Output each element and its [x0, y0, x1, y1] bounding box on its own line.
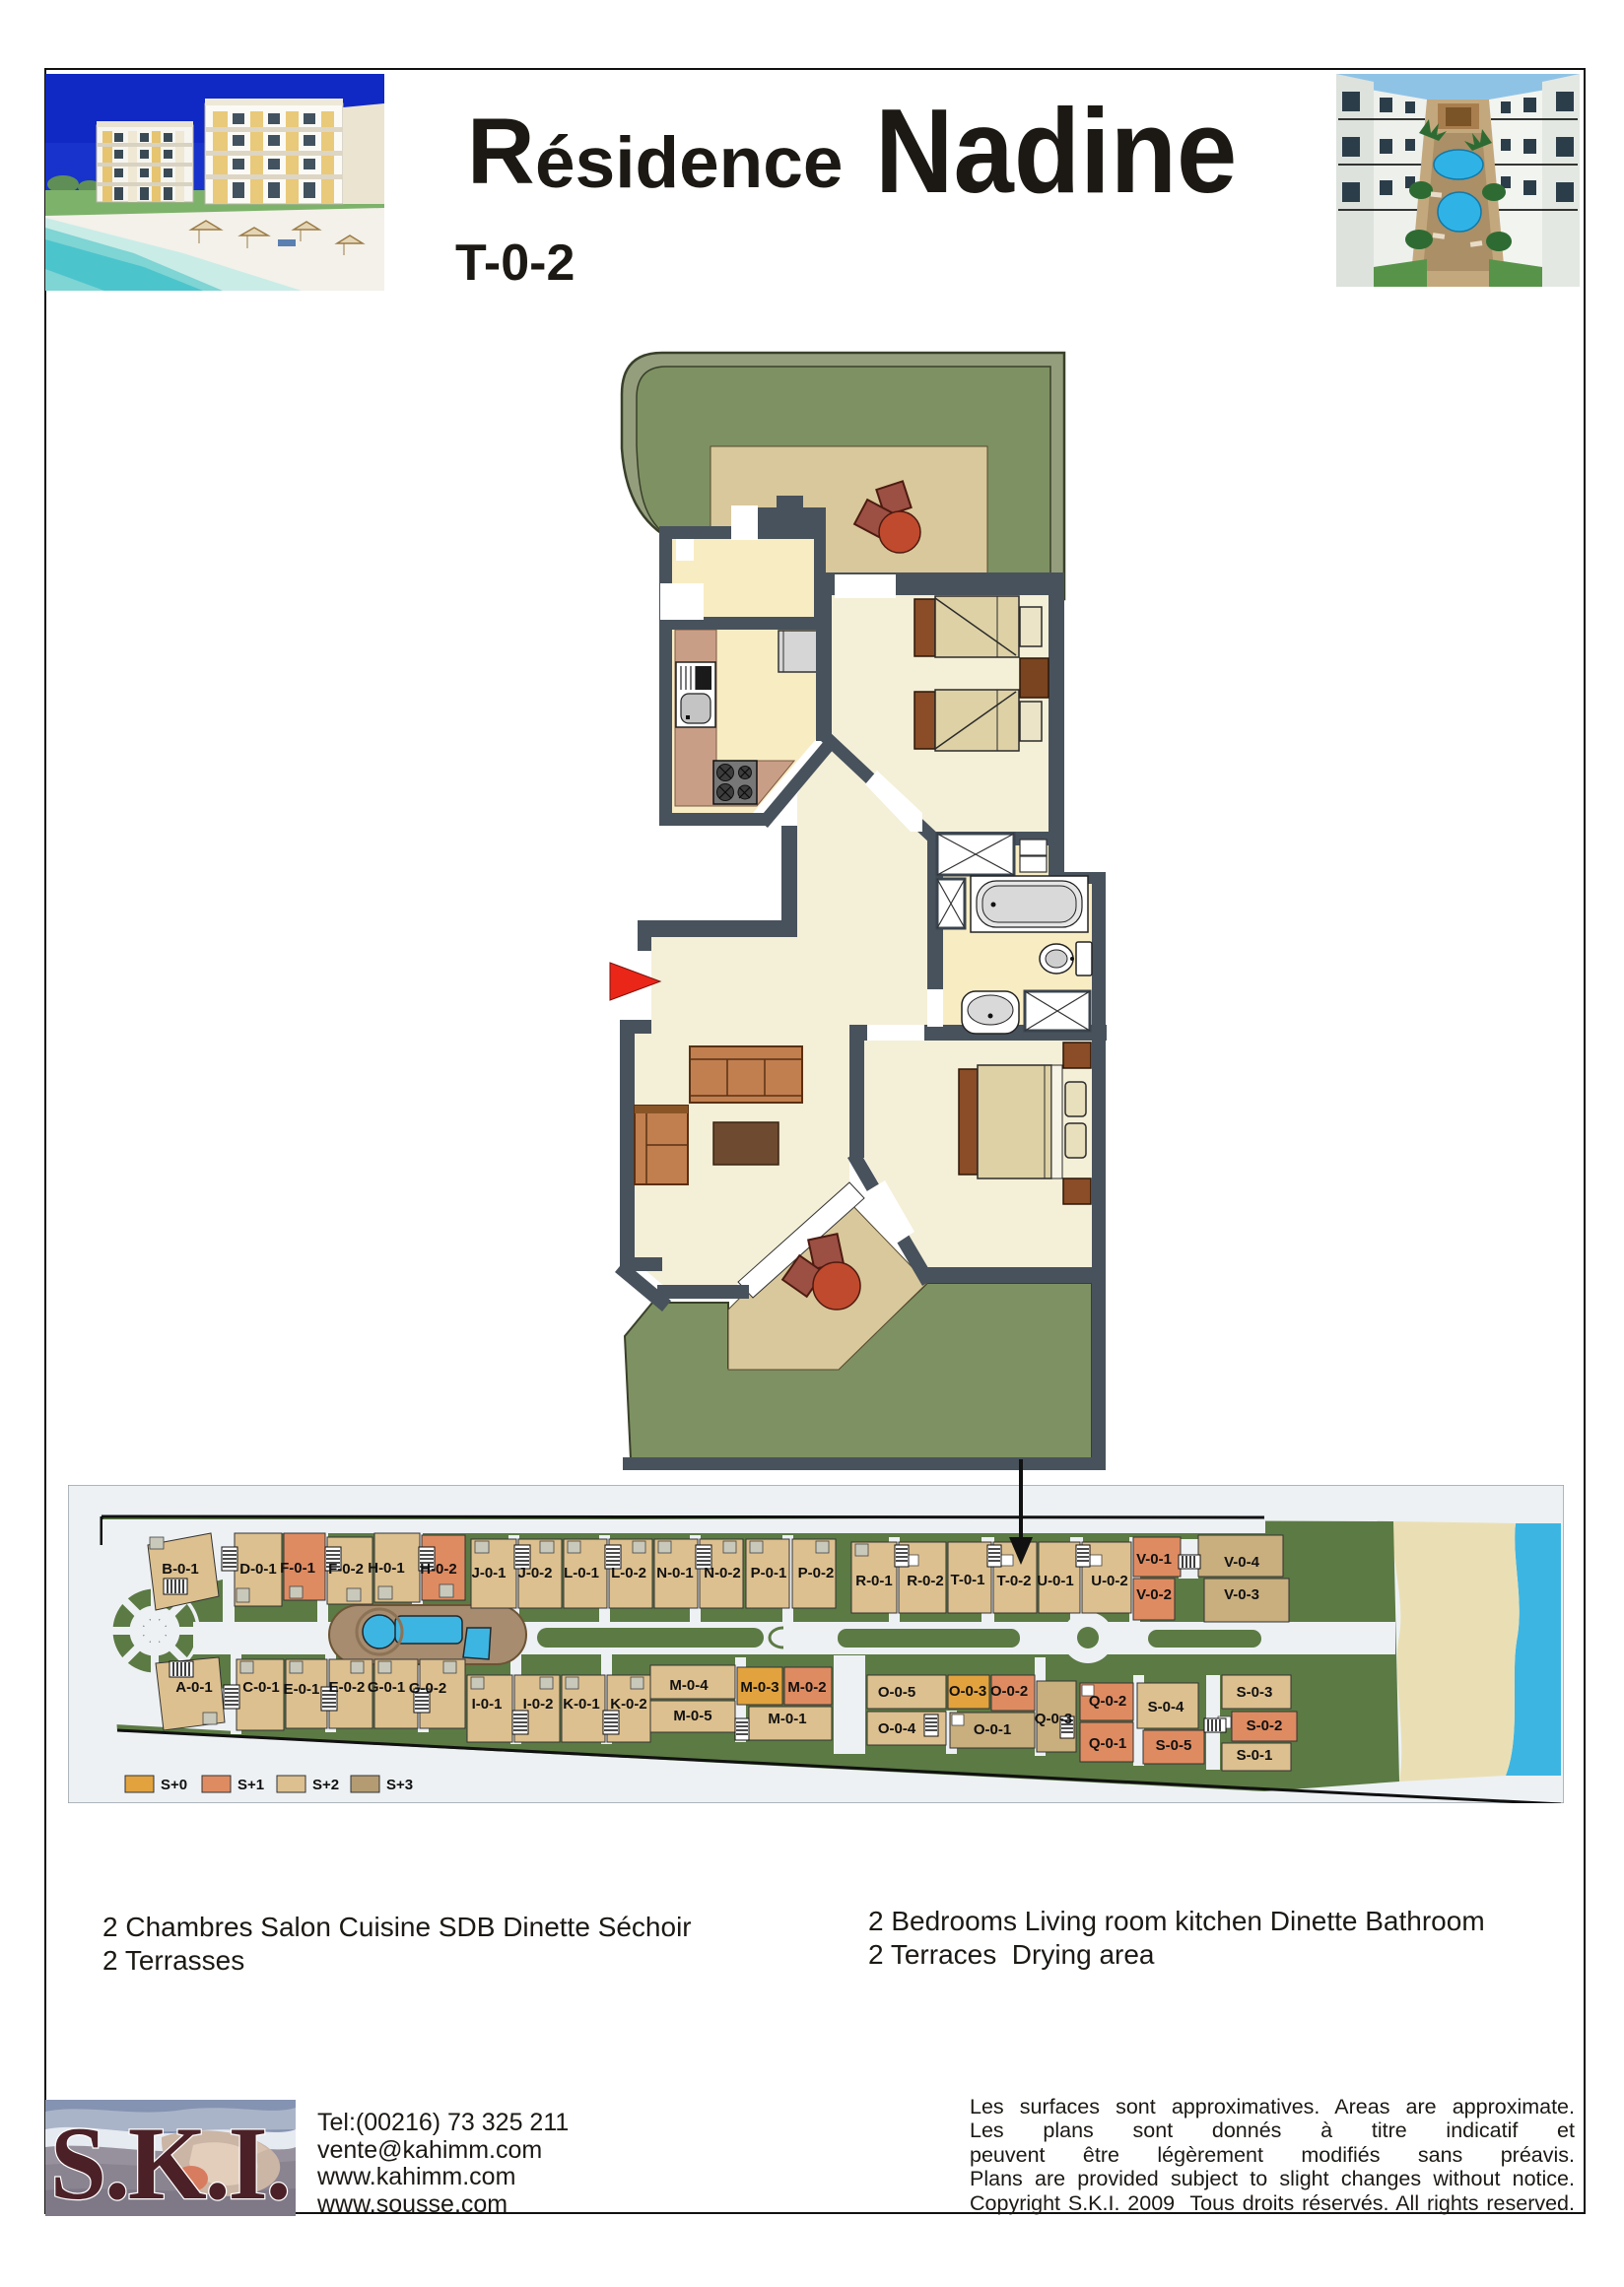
svg-text:J-0-1: J-0-1: [471, 1565, 506, 1581]
svg-text:L-0-2: L-0-2: [611, 1565, 646, 1581]
svg-text:Q-0-3: Q-0-3: [1035, 1711, 1072, 1727]
svg-text:H-0-2: H-0-2: [420, 1561, 457, 1578]
svg-text:K-0-2: K-0-2: [610, 1696, 647, 1713]
svg-text:V-0-3: V-0-3: [1224, 1586, 1259, 1603]
svg-text:M-0-1: M-0-1: [768, 1711, 806, 1727]
svg-text:M-0-2: M-0-2: [787, 1679, 826, 1696]
svg-text:J-0-2: J-0-2: [517, 1565, 552, 1581]
svg-text:V-0-1: V-0-1: [1136, 1551, 1172, 1568]
svg-text:G-0-2: G-0-2: [409, 1680, 446, 1697]
svg-text:O-0-1: O-0-1: [974, 1721, 1011, 1738]
svg-text:Q-0-2: Q-0-2: [1089, 1693, 1126, 1710]
svg-text:I-0-1: I-0-1: [472, 1696, 503, 1713]
svg-text:E-0-1: E-0-1: [284, 1681, 320, 1698]
svg-text:D-0-1: D-0-1: [239, 1561, 277, 1578]
svg-text:U-0-2: U-0-2: [1091, 1573, 1128, 1589]
svg-text:M-0-3: M-0-3: [740, 1679, 778, 1696]
svg-text:T-0-2: T-0-2: [996, 1573, 1031, 1589]
svg-text:S-0-2: S-0-2: [1247, 1717, 1283, 1734]
svg-text:A-0-1: A-0-1: [175, 1679, 213, 1696]
svg-text:Q-0-1: Q-0-1: [1089, 1735, 1126, 1752]
svg-text:T-0-1: T-0-1: [950, 1572, 984, 1588]
svg-text:H-0-1: H-0-1: [368, 1560, 405, 1577]
svg-text:R-0-2: R-0-2: [907, 1573, 944, 1589]
svg-text:F-0-1: F-0-1: [280, 1560, 315, 1577]
svg-text:N-0-2: N-0-2: [704, 1565, 741, 1581]
svg-text:O-0-4: O-0-4: [878, 1720, 916, 1737]
svg-text:S+3: S+3: [386, 1777, 413, 1793]
svg-text:R-0-1: R-0-1: [855, 1573, 893, 1589]
svg-text:K-0-1: K-0-1: [563, 1696, 600, 1713]
svg-text:O-0-2: O-0-2: [990, 1683, 1028, 1700]
svg-text:P-0-2: P-0-2: [798, 1565, 835, 1581]
svg-text:V-0-4: V-0-4: [1224, 1554, 1260, 1571]
svg-text:O-0-5: O-0-5: [878, 1684, 915, 1701]
svg-text:S.K.I.: S.K.I.: [50, 2106, 290, 2216]
svg-text:E-0-2: E-0-2: [329, 1679, 366, 1696]
svg-text:S+1: S+1: [237, 1777, 264, 1793]
svg-text:G-0-1: G-0-1: [368, 1679, 405, 1696]
svg-text:N-0-1: N-0-1: [656, 1565, 694, 1581]
svg-text:U-0-1: U-0-1: [1037, 1573, 1074, 1589]
svg-text:S-0-1: S-0-1: [1237, 1747, 1273, 1764]
svg-text:M-0-5: M-0-5: [673, 1708, 711, 1724]
svg-text:S-0-4: S-0-4: [1148, 1699, 1184, 1715]
svg-text:M-0-4: M-0-4: [669, 1677, 709, 1694]
svg-text:O-0-3: O-0-3: [949, 1683, 986, 1700]
svg-text:I-0-2: I-0-2: [523, 1696, 554, 1713]
svg-text:S+0: S+0: [161, 1777, 187, 1793]
svg-text:S+2: S+2: [312, 1777, 339, 1793]
svg-text:C-0-1: C-0-1: [242, 1679, 280, 1696]
svg-text:S-0-5: S-0-5: [1156, 1737, 1192, 1754]
svg-text:V-0-2: V-0-2: [1136, 1586, 1172, 1603]
svg-text:L-0-1: L-0-1: [564, 1565, 599, 1581]
svg-text:F-0-2: F-0-2: [328, 1561, 364, 1578]
svg-text:P-0-1: P-0-1: [751, 1565, 787, 1581]
svg-text:S-0-3: S-0-3: [1237, 1684, 1273, 1701]
svg-text:B-0-1: B-0-1: [162, 1561, 199, 1578]
